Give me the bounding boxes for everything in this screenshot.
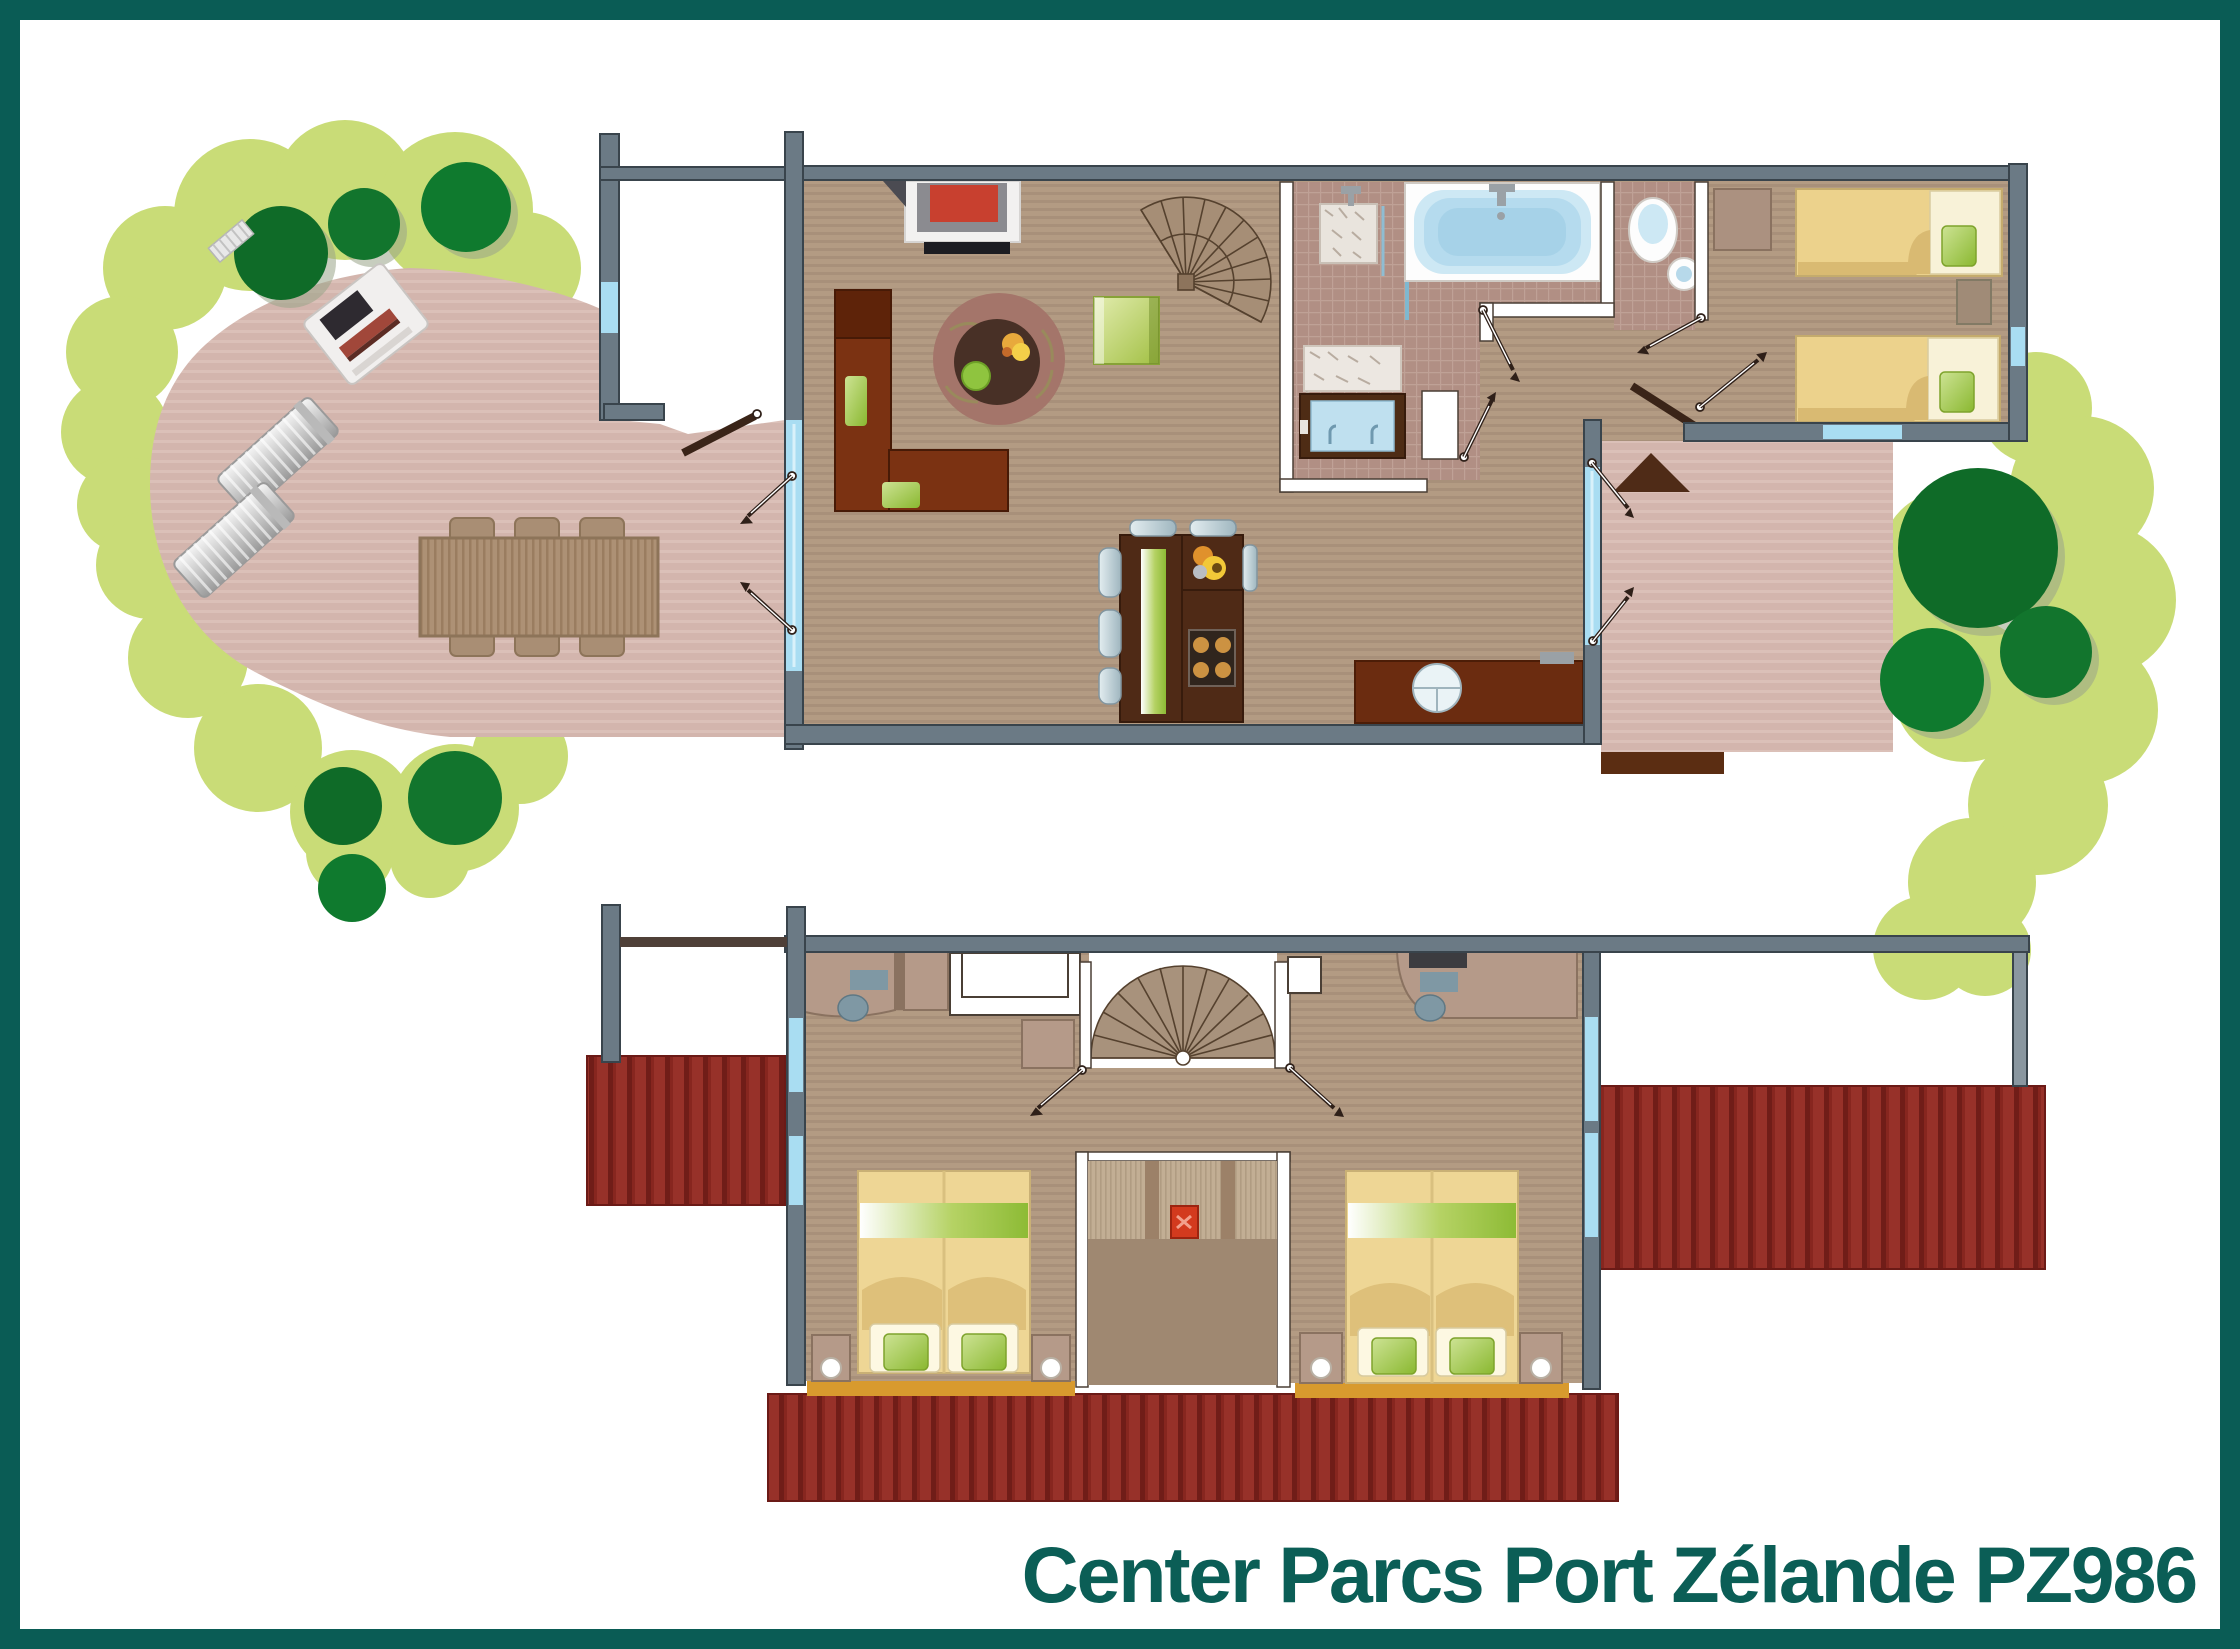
svg-text:Center Parcs Port Zélande PZ98: Center Parcs Port Zélande PZ986 xyxy=(1022,1530,2197,1619)
